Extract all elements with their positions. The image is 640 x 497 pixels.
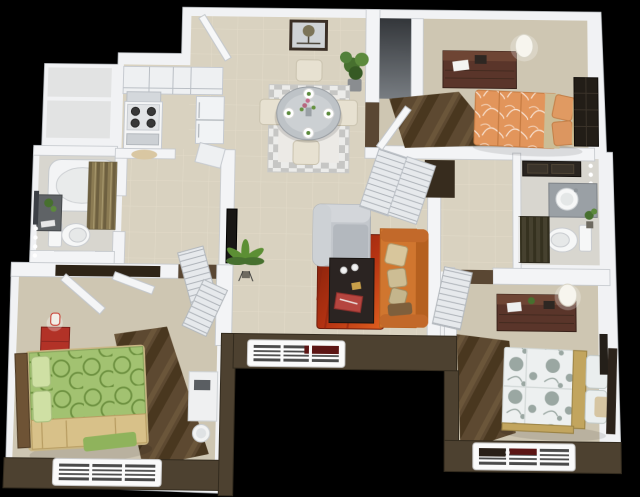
sofa-pillow [384, 243, 408, 267]
sofa-arm [380, 229, 428, 243]
bedroom2-north-wall [493, 268, 610, 285]
bedroomL-closet-recess [55, 265, 160, 277]
mirrored-headboard-closet [574, 78, 599, 147]
cooktop [127, 104, 160, 130]
red-white-lamp [51, 313, 61, 325]
red-blind [510, 448, 539, 455]
book [507, 302, 522, 312]
orange-bed [472, 90, 585, 159]
wall-mirror [599, 334, 608, 375]
bedroom1-door-threshold [365, 102, 379, 147]
sofa-throw [387, 302, 412, 316]
olive-shower-curtain [87, 162, 117, 230]
bathL-south-wall [30, 250, 115, 263]
white-table-lamp [559, 284, 577, 306]
cup [340, 267, 347, 273]
coaster [351, 282, 361, 290]
sofa-pillow [387, 268, 407, 288]
pillow [552, 121, 574, 146]
pillow [552, 94, 576, 121]
gold-rail [571, 351, 586, 429]
apartment-floor-plan [0, 1, 640, 497]
window-bottom-left [52, 458, 161, 486]
cup [352, 264, 359, 270]
white-table-lamp [515, 34, 533, 57]
bathL-north-wall [33, 145, 117, 156]
oven-door [127, 134, 159, 145]
pillow [31, 356, 50, 388]
coffee-table [329, 258, 374, 323]
orange-sofa [380, 229, 429, 328]
green-bed [15, 344, 153, 466]
range-hood [127, 92, 161, 102]
sofa-arm [380, 314, 429, 328]
window-bottom-right [473, 443, 575, 471]
papers [452, 60, 469, 72]
armchair [313, 204, 371, 267]
photo-frame [475, 55, 487, 64]
closet-nook-floor-1 [47, 67, 111, 97]
photo-frame [544, 301, 555, 309]
closet-nook-wall [411, 19, 423, 100]
closet-nook-floor-2 [46, 100, 111, 138]
floor-plan-stage [0, 0, 640, 497]
desk-items [194, 380, 210, 390]
window-center-notch [247, 340, 345, 368]
dresser [443, 51, 516, 89]
pillow [32, 391, 51, 423]
headboard [15, 353, 30, 448]
walk-in-closet-nook [379, 18, 411, 99]
red-magazine [334, 293, 362, 313]
dark-blind [479, 448, 506, 457]
dark-shower-curtain [519, 216, 549, 262]
